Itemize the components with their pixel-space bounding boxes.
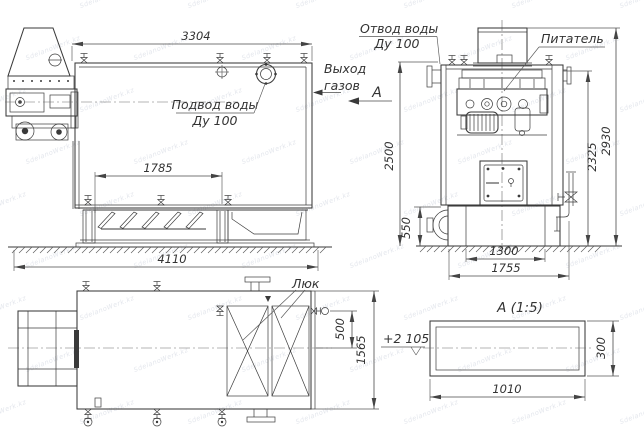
dim-overall-length: 4110 (157, 252, 186, 266)
valve-icon (154, 282, 161, 292)
detail-view-a: А (1:5) 1010 300 (423, 300, 619, 401)
valve-icon (546, 56, 553, 66)
level-mark-value: +2 105 (383, 331, 429, 346)
dim-drum-overall-length: 1755 (491, 261, 520, 275)
top-flange-icon (245, 277, 270, 291)
right-flange-icon (563, 67, 571, 84)
valve-icon (85, 196, 92, 206)
valve-icon (461, 56, 468, 66)
dim-offset: 500 (333, 318, 347, 340)
side-view: 3304 Подвод воды Ду 100 Выход газов А (5, 28, 392, 271)
valve-icon (81, 54, 88, 64)
valve-icon (217, 54, 224, 64)
dim-overall-height: 2930 (599, 126, 613, 155)
feeder-hopper-front (473, 28, 532, 66)
label-water-outlet-size: Ду 100 (374, 36, 420, 51)
detail-title: А (1:5) (496, 300, 543, 316)
side-valve-icon (311, 308, 329, 315)
dim-drum-body-length: 1300 (489, 244, 518, 258)
left-flange-icon (427, 66, 441, 87)
dim-body-height: 2325 (585, 142, 599, 171)
dim-overall-width: 1565 (354, 335, 368, 364)
label-gas-outlet-1: Выход (324, 61, 366, 76)
feeder-drive-front (457, 70, 548, 136)
label-water-supply: Подвод воды (172, 97, 259, 112)
valve-icon (449, 56, 456, 66)
technical-drawing-canvas: SdelanoWerk.kzSdelanoWerk.kzSdelanoWerk.… (0, 0, 644, 430)
grate-slats (98, 212, 206, 229)
feeder-footprint (18, 311, 79, 386)
label-water-supply-size: Ду 100 (192, 113, 238, 128)
valve-icon (83, 282, 90, 292)
valve-icon (225, 196, 232, 206)
drain-mark-icon (265, 296, 271, 302)
dim-grate-length: 1785 (143, 161, 172, 175)
plan-view: Люк 500 1565 +2 105 (8, 276, 429, 426)
drain-pipe (554, 172, 577, 231)
nozzle-stub (95, 398, 101, 407)
dim-height-to-top: 2500 (382, 141, 396, 170)
valve-icon (264, 54, 271, 64)
bottom-valve-icon (218, 409, 226, 426)
bottom-flange-icon (247, 409, 275, 422)
water-supply-flange-icon (255, 63, 277, 85)
label-water-outlet: Отвод воды (360, 21, 438, 36)
section-mark: А (371, 85, 382, 101)
front-view: Отвод воды Ду 100 Питатель 2500 550 2325… (359, 20, 622, 280)
label-hatch: Люк (291, 276, 320, 291)
level-mark-icon (381, 347, 425, 355)
dim-detail-height: 300 (594, 337, 608, 359)
dim-length-top: 3304 (181, 29, 210, 43)
dim-detail-length: 1010 (492, 382, 521, 396)
label-gas-outlet-2: газов (324, 78, 360, 93)
access-door (480, 161, 527, 205)
hatch-cover-left (227, 306, 268, 396)
valve-icon (217, 306, 224, 316)
drawing-svg: 3304 Подвод воды Ду 100 Выход газов А (0, 0, 644, 430)
valve-icon (301, 54, 308, 64)
feeder-side (6, 28, 79, 209)
valve-icon (158, 196, 165, 206)
bottom-valve-icon (84, 409, 92, 426)
grate-frame (76, 210, 314, 247)
dim-ground-clearance: 550 (399, 217, 413, 239)
section-arrow-icon (348, 97, 392, 104)
bottom-valve-icon (153, 409, 161, 426)
label-feeder: Питатель (541, 31, 604, 46)
ash-drum-front (427, 206, 560, 246)
hatch-cover-right (272, 306, 309, 396)
